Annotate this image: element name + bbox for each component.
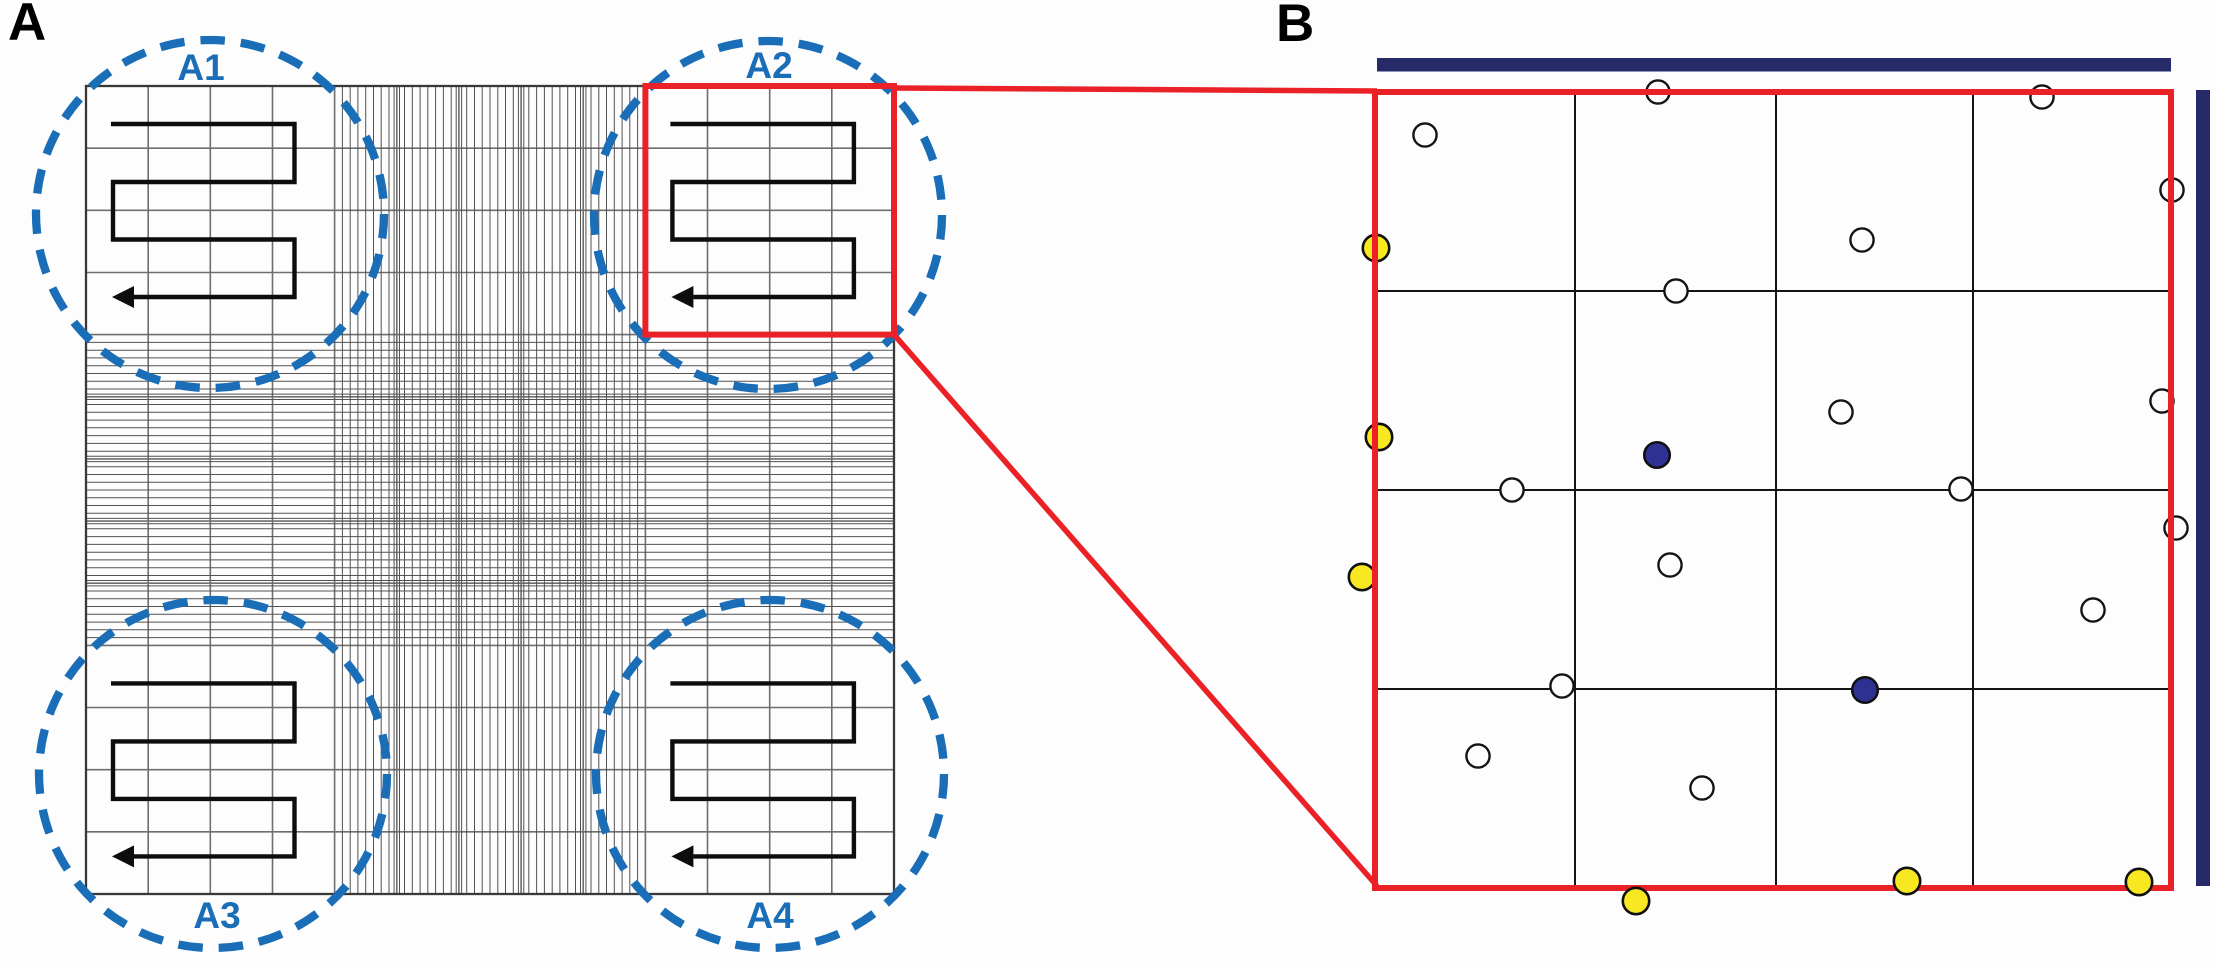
svg-text:A4: A4	[746, 895, 794, 936]
svg-text:A: A	[8, 0, 46, 52]
svg-text:A3: A3	[193, 895, 240, 936]
svg-text:A2: A2	[745, 45, 792, 86]
svg-text:A1: A1	[177, 47, 224, 88]
svg-text:B: B	[1276, 0, 1314, 53]
